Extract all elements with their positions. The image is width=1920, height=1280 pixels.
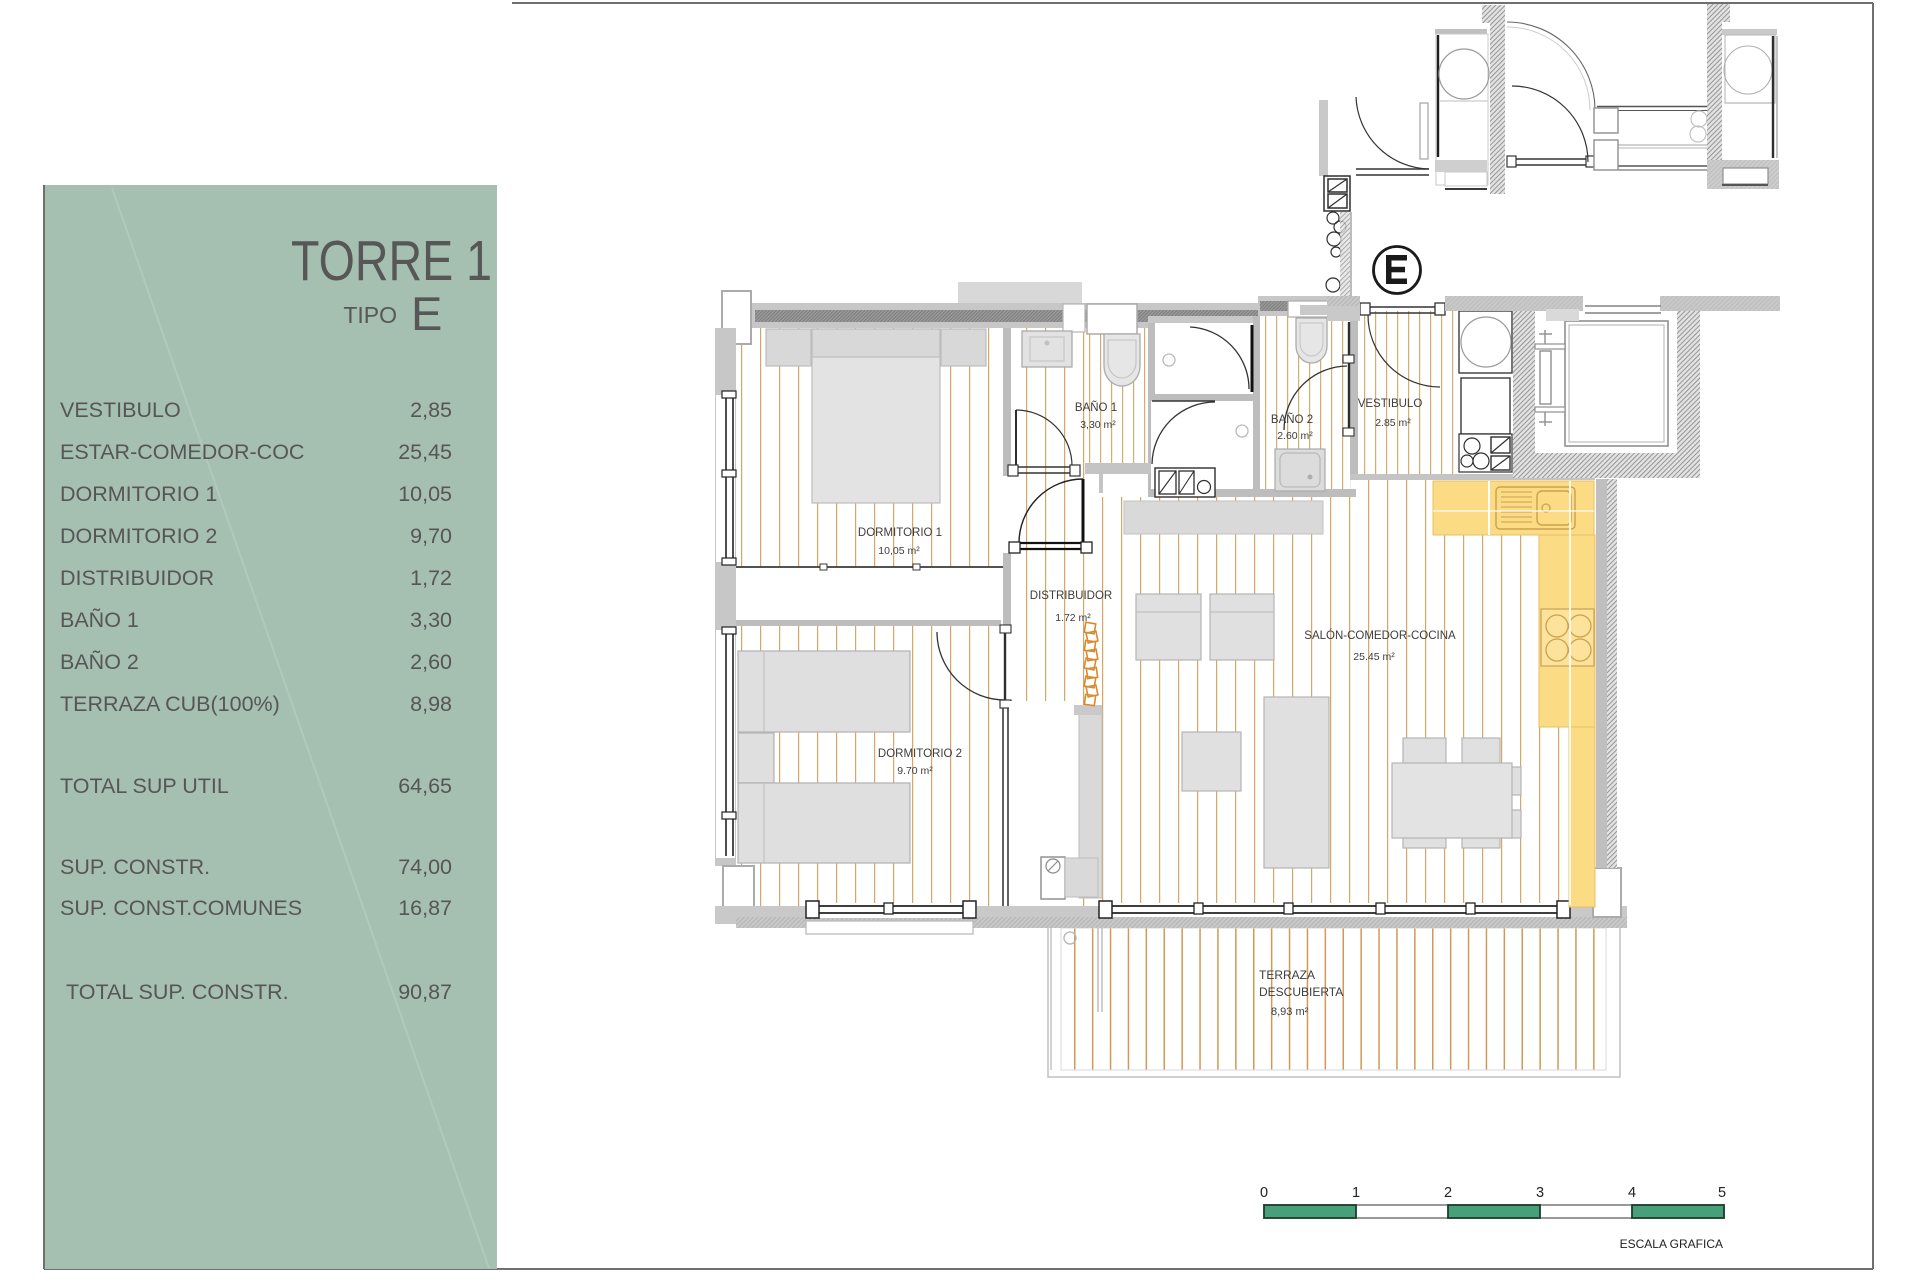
svg-text:9.70 m²: 9.70 m² — [897, 765, 933, 777]
svg-text:90,87: 90,87 — [398, 980, 452, 1004]
svg-text:4: 4 — [1628, 1185, 1636, 1201]
svg-text:TOTAL SUP. CONSTR.: TOTAL SUP. CONSTR. — [66, 980, 289, 1004]
svg-text:TERRAZA CUB(100%): TERRAZA CUB(100%) — [60, 692, 280, 716]
svg-text:SUP. CONSTR.: SUP. CONSTR. — [60, 855, 210, 879]
svg-text:3,30: 3,30 — [410, 608, 452, 632]
svg-text:9,70: 9,70 — [410, 524, 452, 548]
svg-text:2.60 m²: 2.60 m² — [1277, 430, 1313, 442]
svg-text:3: 3 — [1536, 1185, 1544, 1201]
svg-text:8,93 m²: 8,93 m² — [1271, 1006, 1309, 1018]
svg-text:74,00: 74,00 — [398, 855, 452, 879]
svg-text:2: 2 — [1444, 1185, 1452, 1201]
svg-text:SALÓN-COMEDOR-COCINA: SALÓN-COMEDOR-COCINA — [1304, 629, 1456, 642]
svg-text:DORMITORIO 2: DORMITORIO 2 — [60, 524, 217, 548]
svg-text:2.85 m²: 2.85 m² — [1375, 417, 1411, 429]
svg-text:0: 0 — [1260, 1185, 1268, 1201]
svg-text:TORRE 1: TORRE 1 — [291, 229, 492, 293]
svg-text:DISTRIBUIDOR: DISTRIBUIDOR — [1030, 590, 1112, 602]
svg-text:VESTIBULO: VESTIBULO — [60, 398, 181, 422]
svg-text:ESTAR-COMEDOR-COC: ESTAR-COMEDOR-COC — [60, 440, 304, 464]
svg-text:3,30 m²: 3,30 m² — [1080, 419, 1116, 431]
svg-text:5: 5 — [1718, 1185, 1726, 1201]
svg-text:BAÑO 2: BAÑO 2 — [1271, 413, 1313, 426]
svg-text:8,98: 8,98 — [410, 692, 452, 716]
svg-text:TERRAZA: TERRAZA — [1259, 968, 1315, 982]
svg-text:VESTIBULO: VESTIBULO — [1358, 398, 1423, 410]
svg-text:10,05 m²: 10,05 m² — [878, 545, 920, 557]
svg-text:BAÑO 1: BAÑO 1 — [60, 607, 139, 632]
svg-text:1,72: 1,72 — [410, 566, 452, 590]
svg-text:BAÑO 2: BAÑO 2 — [60, 649, 139, 674]
svg-text:ESCALA GRAFICA: ESCALA GRAFICA — [1620, 1237, 1723, 1251]
svg-text:DORMITORIO 1: DORMITORIO 1 — [60, 482, 217, 506]
svg-text:64,65: 64,65 — [398, 774, 452, 798]
svg-text:DORMITORIO 1: DORMITORIO 1 — [858, 527, 942, 539]
svg-text:25,45: 25,45 — [398, 440, 452, 464]
svg-text:1: 1 — [1352, 1185, 1360, 1201]
svg-text:E: E — [411, 287, 442, 340]
svg-text:DORMITORIO 2: DORMITORIO 2 — [878, 748, 962, 760]
svg-text:10,05: 10,05 — [398, 482, 452, 506]
svg-text:DISTRIBUIDOR: DISTRIBUIDOR — [60, 566, 214, 590]
svg-text:2,60: 2,60 — [410, 650, 452, 674]
svg-text:DESCUBIERTA: DESCUBIERTA — [1259, 985, 1343, 999]
svg-text:TIPO: TIPO — [343, 302, 397, 328]
svg-text:25.45 m²: 25.45 m² — [1353, 651, 1395, 663]
svg-text:1.72 m²: 1.72 m² — [1055, 612, 1091, 624]
svg-text:BAÑO 1: BAÑO 1 — [1075, 401, 1117, 414]
svg-text:16,87: 16,87 — [398, 896, 452, 920]
svg-text:2,85: 2,85 — [410, 398, 452, 422]
svg-text:SUP. CONST.COMUNES: SUP. CONST.COMUNES — [60, 896, 302, 920]
svg-text:TOTAL SUP UTIL: TOTAL SUP UTIL — [60, 774, 229, 798]
